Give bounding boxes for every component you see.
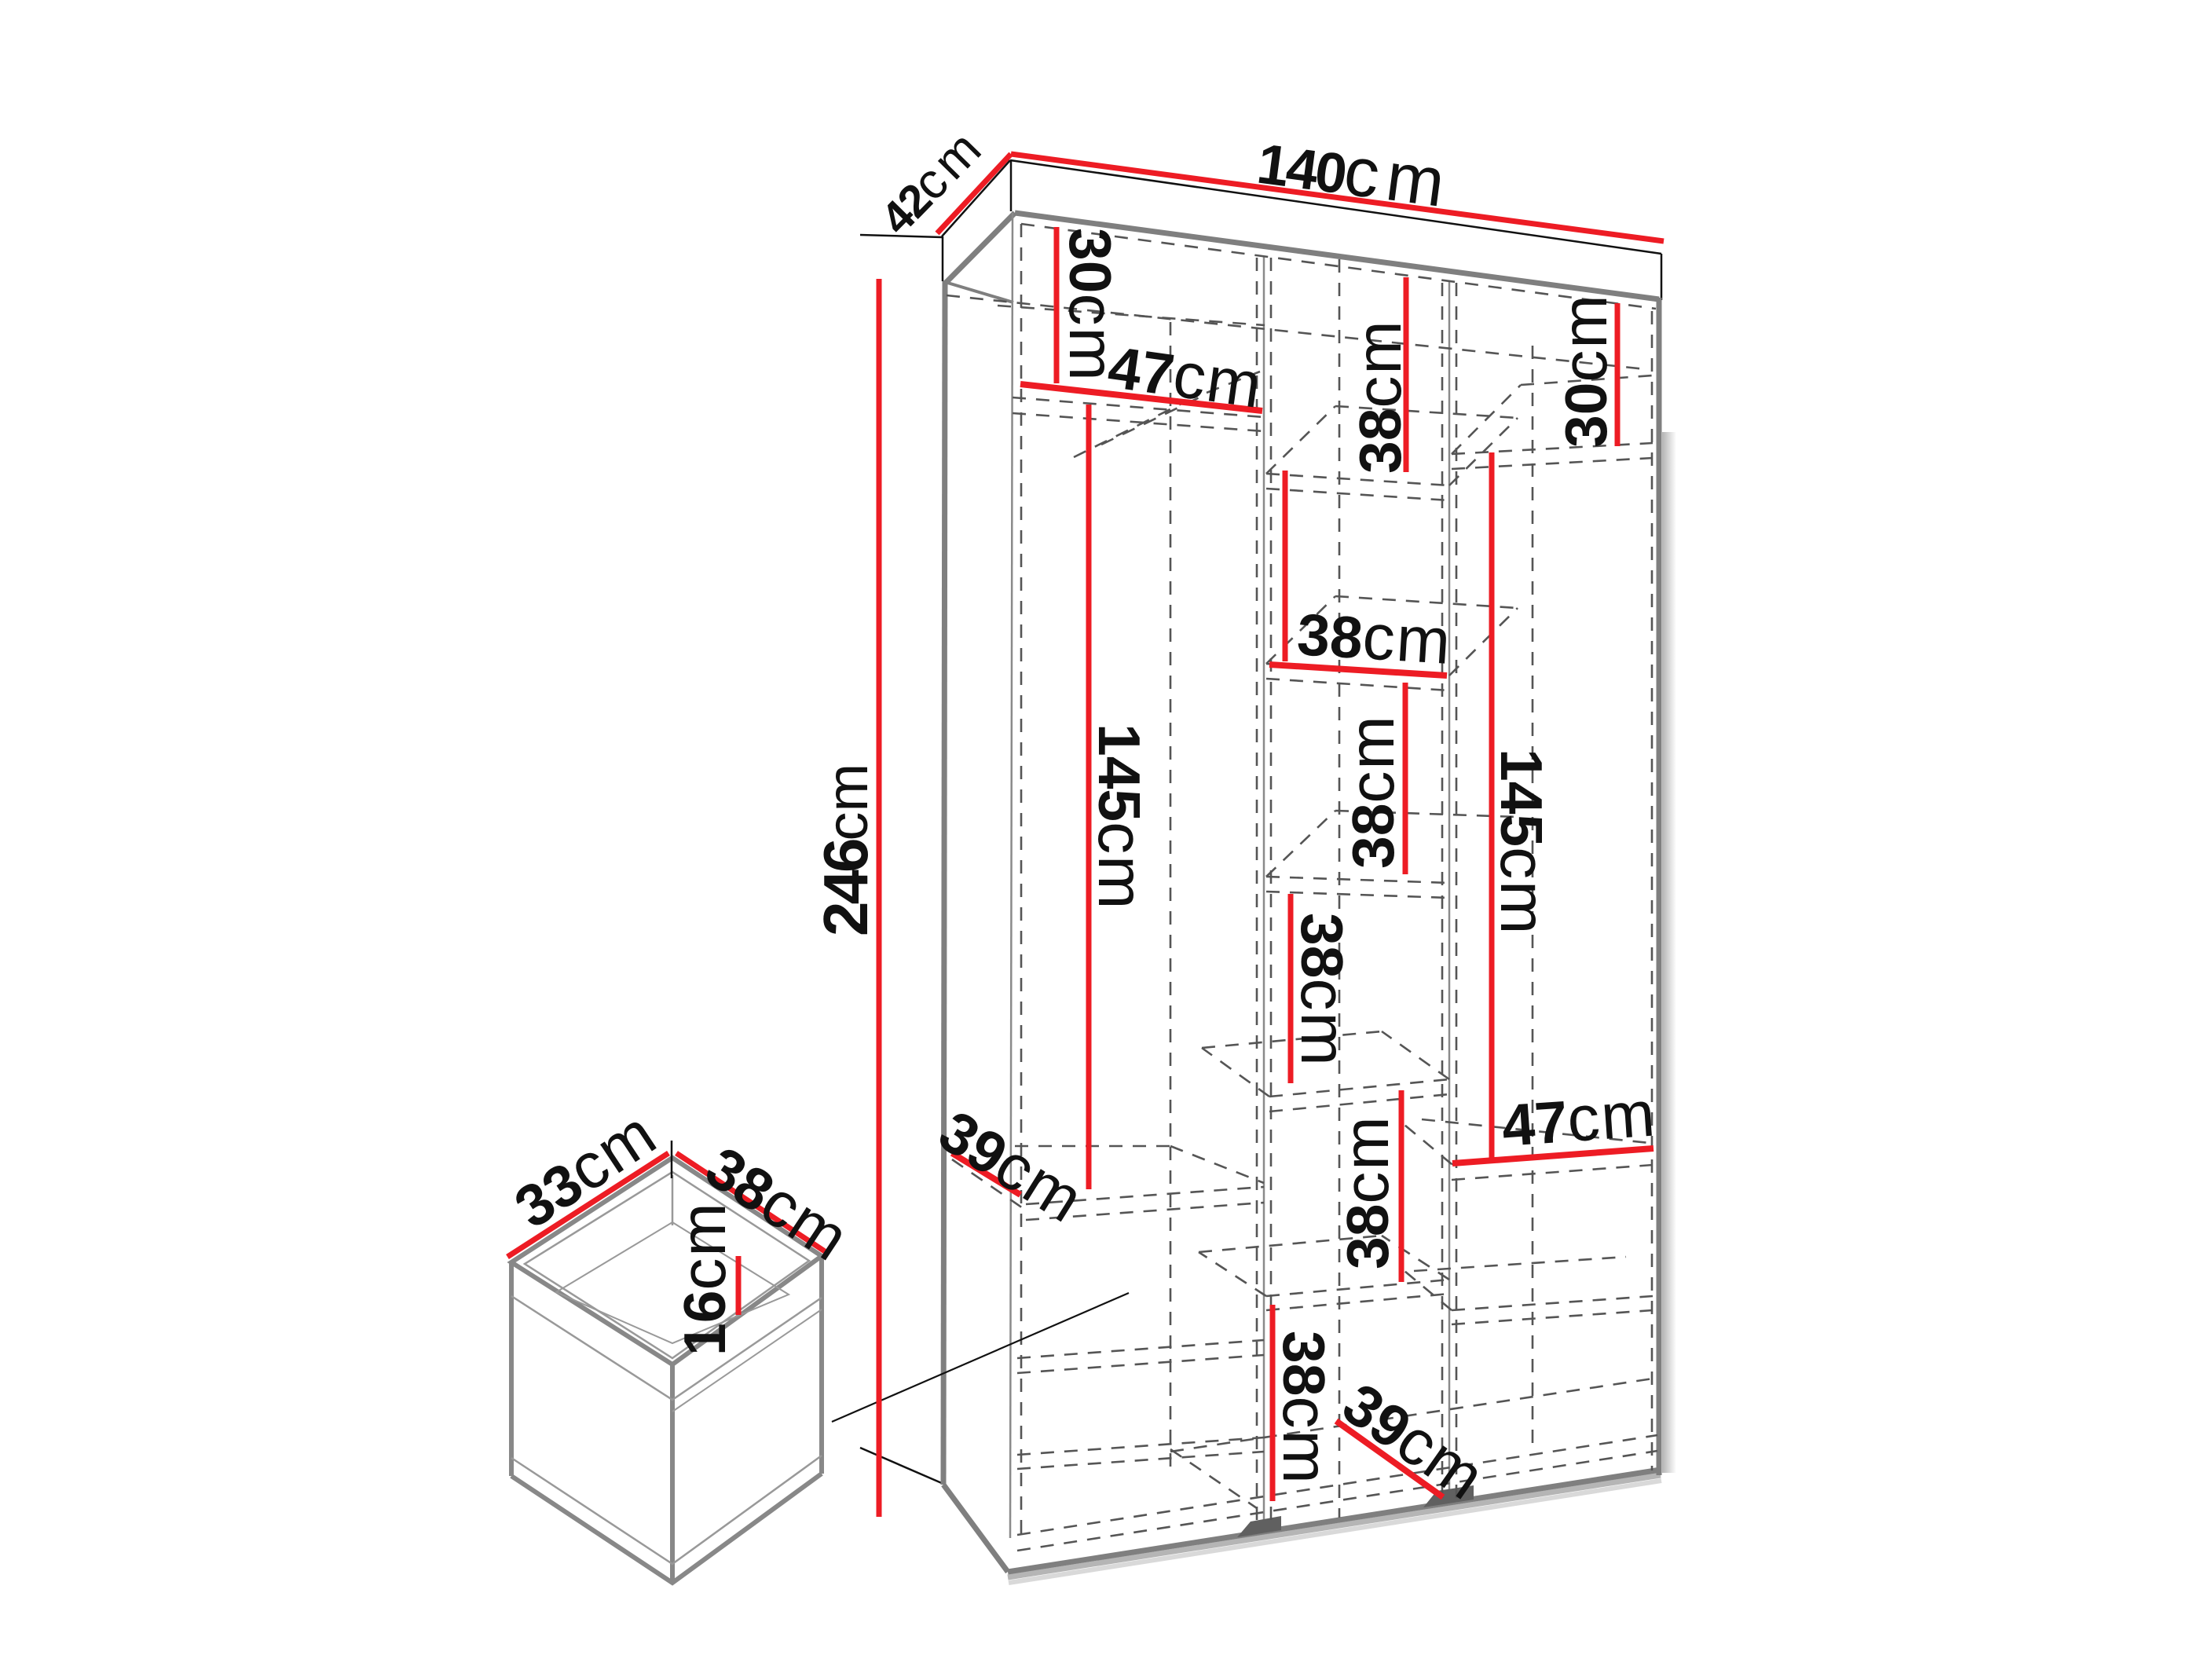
svg-text:145cm: 145cm (1085, 723, 1156, 910)
svg-text:38cm: 38cm (1343, 319, 1415, 474)
svg-text:38cm: 38cm (1336, 714, 1408, 869)
svg-text:30cm: 30cm (1549, 293, 1621, 448)
svg-text:38cm: 38cm (1287, 913, 1359, 1068)
svg-text:145cm: 145cm (1487, 749, 1558, 936)
svg-text:38cm: 38cm (1295, 597, 1454, 678)
svg-text:47cm: 47cm (1500, 1078, 1659, 1160)
svg-text:38cm: 38cm (1269, 1331, 1341, 1485)
svg-text:246cm: 246cm (811, 764, 881, 936)
svg-text:38cm: 38cm (1331, 1115, 1402, 1269)
svg-text:16cm: 16cm (668, 1201, 739, 1356)
